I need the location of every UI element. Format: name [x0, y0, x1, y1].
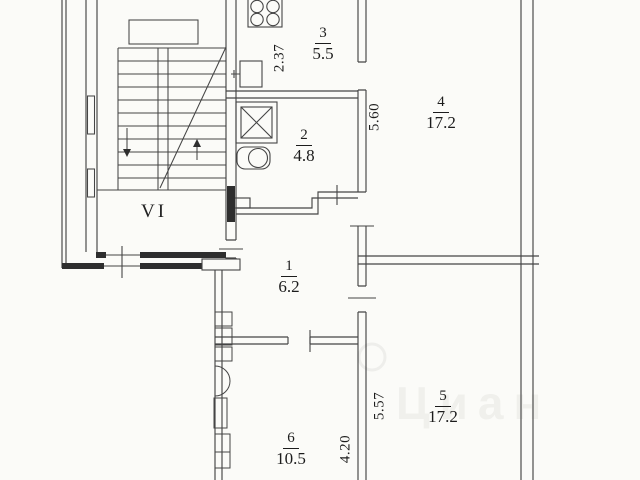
room-number: 1 — [281, 259, 297, 277]
service-shaft — [214, 312, 232, 468]
stair-break-line — [160, 47, 226, 188]
dimension-room6-depth: 4.20 — [338, 435, 355, 463]
room-area: 4.8 — [293, 146, 314, 165]
room-number: 6 — [283, 431, 299, 449]
wall-fill-segments — [62, 186, 235, 269]
stairwell — [88, 20, 227, 197]
stair-window — [88, 96, 95, 134]
toilet-icon — [237, 147, 270, 169]
room-number: 2 — [296, 128, 312, 146]
room-area: 10.5 — [276, 449, 306, 468]
dimension-room5-depth: 5.57 — [372, 392, 389, 420]
room-2-label: 2 4.8 — [274, 128, 334, 165]
room-number: 3 — [315, 26, 331, 44]
watermark: Циан — [396, 376, 551, 430]
stair-arrow-down-head — [123, 149, 131, 157]
shower-icon — [236, 102, 277, 143]
stair-window — [88, 169, 95, 197]
room-4-label: 4 17.2 — [411, 95, 471, 132]
elevator-shaft — [129, 20, 198, 44]
cut-off-dimension: 2.64 — [142, 0, 178, 5]
room-area: 6.2 — [278, 277, 299, 296]
floor-plan: 2.64 VI 3 5.5 2 4.8 4 17.2 1 6.2 6 10.5 … — [0, 0, 640, 480]
stove-icon — [248, 0, 282, 27]
stairwell-label: VI — [132, 201, 176, 223]
stair-arrow-up-head — [193, 139, 201, 147]
dimension-room4-depth: 5.60 — [367, 103, 384, 131]
room-1-label: 1 6.2 — [259, 259, 319, 296]
room-number: 4 — [433, 95, 449, 113]
watermark-logo — [359, 344, 385, 370]
dimension-kitchen-width: 2.37 — [272, 44, 289, 72]
room-area: 5.5 — [312, 44, 333, 63]
room-area: 17.2 — [426, 113, 456, 132]
room-3-label: 3 5.5 — [293, 26, 353, 63]
room-6-label: 6 10.5 — [261, 431, 321, 468]
